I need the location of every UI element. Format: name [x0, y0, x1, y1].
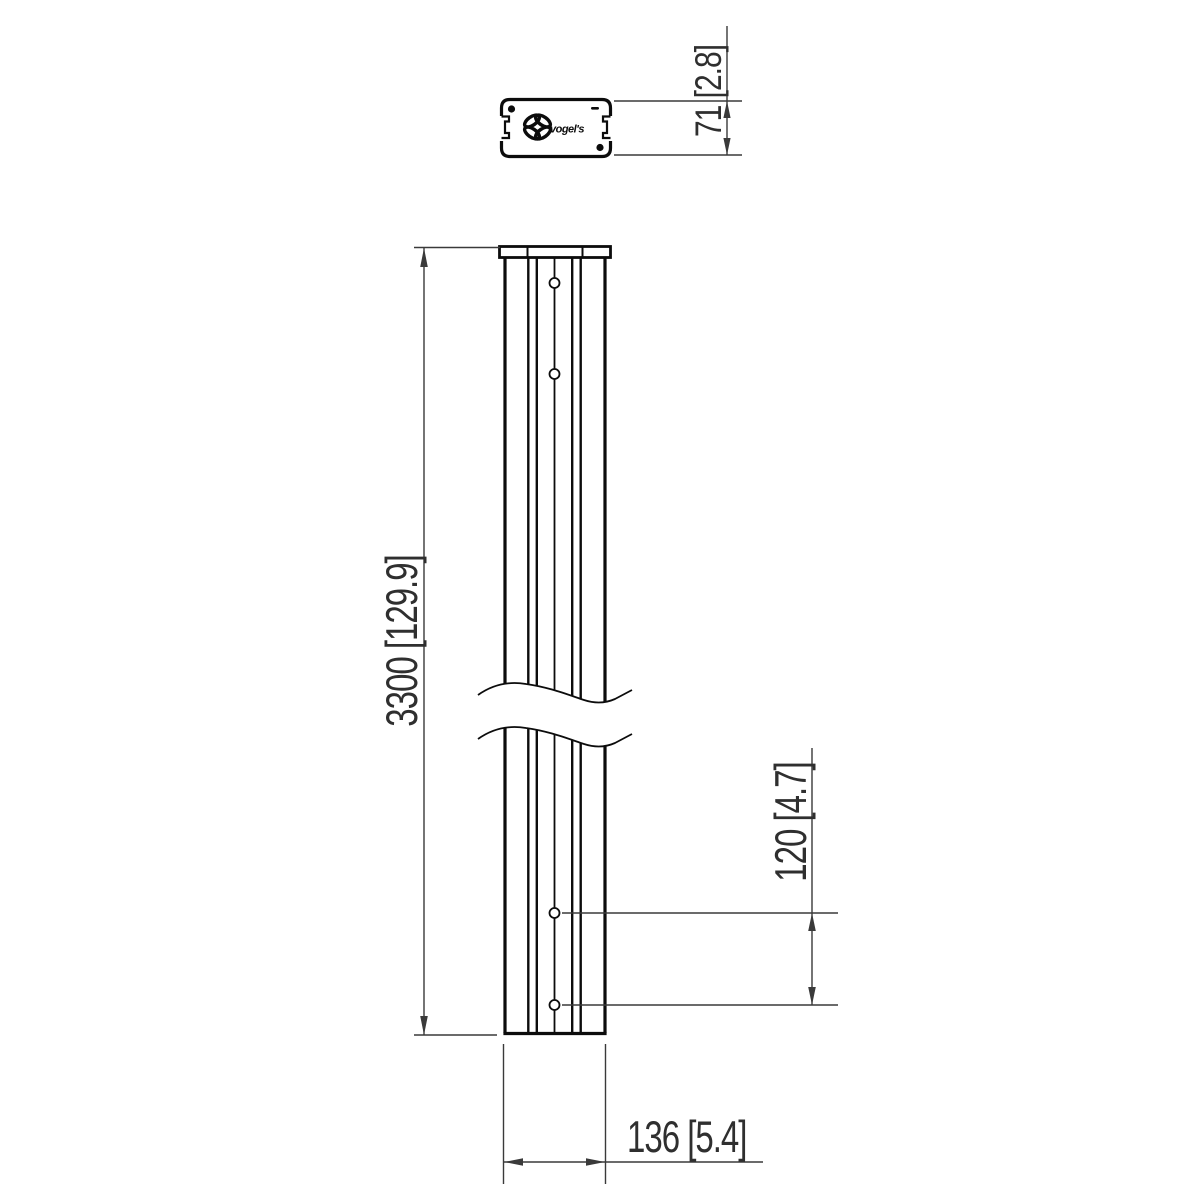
dim-label-pole-width: 136 [5.4]: [627, 1113, 746, 1162]
pole-cap-outline: [500, 247, 611, 258]
dim-label-pole-length: 3300 [129.9]: [378, 555, 427, 726]
dim-label-hole-pitch: 120 [4.7]: [767, 762, 816, 881]
technical-drawing: vogel's: [0, 0, 1200, 1200]
logo-wordmark: vogel's: [550, 124, 584, 136]
arrow-down-icon: [723, 138, 730, 155]
arrow-left-icon: [504, 1158, 523, 1166]
profile-top-slot: [591, 107, 599, 110]
profile-hole-bottom-right: [596, 144, 603, 151]
arrow-down-icon: [420, 1016, 428, 1035]
profile-hole-top-left: [508, 105, 515, 112]
arrow-down-icon: [808, 987, 816, 1005]
arrow-up-icon: [808, 913, 816, 931]
dim-label-profile-depth: 71 [2.8]: [688, 45, 730, 137]
section-view: vogel's: [499, 100, 613, 157]
mounting-hole: [550, 908, 560, 918]
mounting-hole: [550, 278, 560, 288]
dim-pole-length: 3300 [129.9]: [378, 248, 500, 1036]
front-view: [478, 247, 632, 1034]
arrow-right-icon: [586, 1158, 605, 1166]
pole-cap: [500, 247, 611, 258]
dimensions: 71 [2.8] 3300 [129.9] 120 [4.7]: [378, 26, 838, 1184]
arrow-up-icon: [420, 248, 428, 267]
drawing-canvas: vogel's: [0, 0, 1200, 1200]
mounting-hole: [550, 1000, 560, 1010]
mounting-hole: [550, 369, 560, 379]
dim-pole-width: 136 [5.4]: [504, 1044, 764, 1184]
dim-profile-depth: 71 [2.8]: [614, 26, 742, 155]
